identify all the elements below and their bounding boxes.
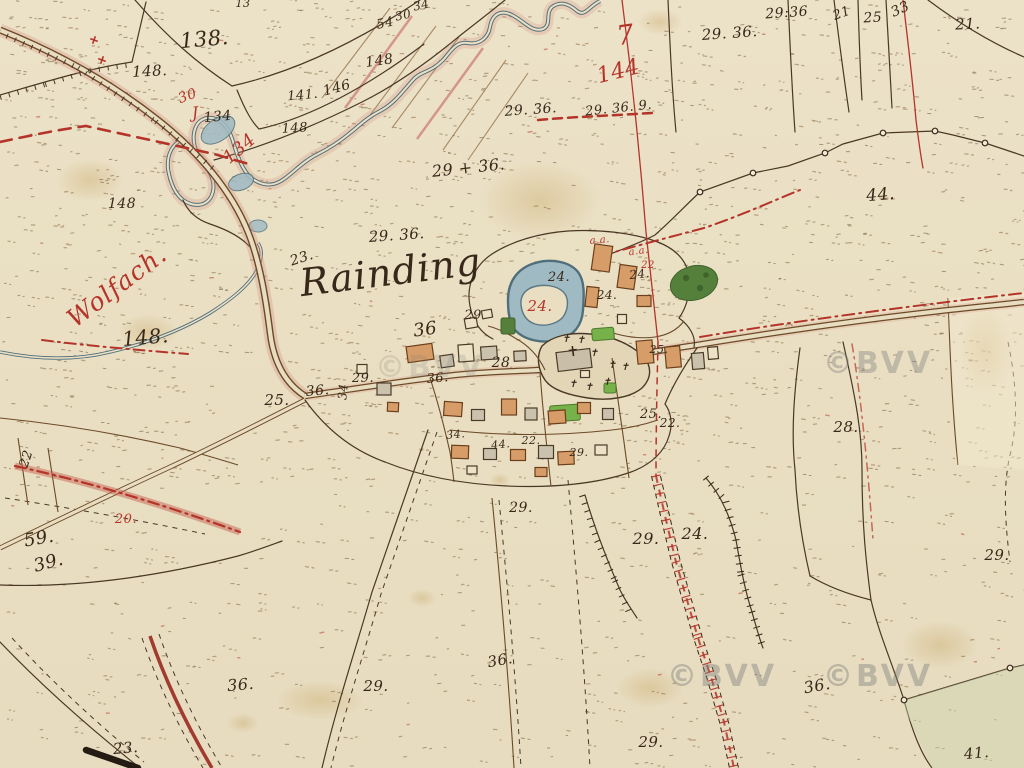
parcel-number-label: 22 [640,260,655,271]
survey-point-icon [901,697,907,703]
grave-cross-icon: ✝ [590,348,599,359]
building-wood [387,402,398,412]
grave-cross-icon: ✝ [608,360,617,371]
building-open [595,445,607,455]
building-wood-footprint [578,403,591,414]
grave-cross-icon: ✝ [562,334,571,345]
parcel-number-label: 29. [569,446,589,459]
building-stone-footprint [525,408,537,420]
parcel-number-label: a.a. [589,234,610,247]
parcel-number-label: 20. [114,512,137,527]
parcel-number-label: 29:36 [764,4,809,23]
parcel-number-label: 41. [962,743,990,763]
building-open-footprint [618,315,627,324]
parcel-number-label: 36. [226,674,255,695]
parcel-number-label: 34 [335,383,350,400]
survey-point-icon [932,128,938,134]
grave-cross-icon: ✝ [621,362,630,373]
parcel-number-label: 29. [508,500,533,516]
survey-point-icon [750,170,756,176]
parcel-number-label: 148 [281,120,308,136]
building-open-footprint [595,445,607,455]
building-wood-footprint [548,410,566,424]
building-wood [578,403,591,414]
parcel-number-label: 29. [637,733,663,751]
survey-point-icon [697,189,703,195]
parcel-number-label: 24. [547,270,570,285]
parcel-number-label: 22. [659,416,681,430]
building-stone-footprint [539,446,554,459]
parcel-number-label: 44. [490,437,511,452]
building-open-footprint [707,347,718,360]
survey-point-icon [822,150,828,156]
building-wood-footprint [444,401,463,416]
parcel-number-label: 28 [491,355,511,371]
parcel-number-label: 34. [446,427,466,442]
grave-cross-icon: ✝ [585,382,594,393]
paper-stain [276,680,364,720]
building-wood [535,468,547,477]
building-wood [502,399,517,415]
light-parcel [948,292,1024,470]
grave-cross-icon: ✝ [577,335,586,346]
building-stone-footprint [514,351,527,362]
building-stone-footprint [472,410,485,421]
parcel-number-label: 141. [287,87,319,105]
garden-plot [592,327,615,341]
parcel-number-label: 29 [463,308,482,323]
building-stone [603,409,614,420]
building-open [618,315,627,324]
bvv-watermark: ©BVV [823,659,933,694]
tree-icon [683,275,689,281]
parcel-number-label: 22. [521,434,541,447]
building-open [707,347,718,360]
building-wood-footprint [591,244,612,272]
parcel-number-label: 28. [832,418,858,436]
grave-cross-icon: ✝ [603,377,612,388]
building-wood-footprint [637,296,651,307]
parcel-number-label: 25. [263,391,289,409]
parcel-number-label: 29. [351,371,374,386]
tree-icon [697,285,703,291]
parcel-number-label: 44. [864,184,895,206]
building-wood-footprint [511,450,526,461]
garden-plot [501,318,515,334]
building-stone-footprint [603,409,614,420]
bvv-watermark: ©BVV [667,659,777,694]
building-wood [637,296,651,307]
parcel-number-label: 36 [412,317,439,341]
parcel-number-label: 25. [639,407,662,422]
parcel-number-label: 29. [983,546,1009,564]
survey-point-icon [880,130,886,136]
building-open [481,309,492,319]
parcel-number-label: 148 [108,196,136,212]
bvv-watermark: ©BVV [823,346,933,381]
paper-stain [227,713,259,733]
parcel-number-label: 25. [649,343,669,356]
building-wood-footprint [502,399,517,415]
building-stone-footprint [691,353,704,370]
parcel-number-label: 25 [862,10,883,27]
paper-stain [408,589,436,607]
building-open [467,466,477,474]
parcel-number-label: 21. [954,14,981,33]
parcel-number-label: 29. [632,529,660,548]
cadastral-map: Historische Katasterkarte – Rainding an … [0,0,1024,768]
scanned-map-page: Historische Katasterkarte – Rainding an … [0,0,1024,768]
parcel-number-label: 24. [681,524,709,543]
building-wood [511,450,526,461]
building-open-footprint [481,309,492,319]
parcel-number-label: 29. [362,677,388,695]
building-wood [591,244,612,272]
building-wood-footprint [535,468,547,477]
parcel-number-label: 148. [132,61,168,81]
survey-point-icon [1007,665,1013,671]
parcel-number-label: 24. [526,297,552,315]
building-stone [539,446,554,459]
church-building-footprint [556,348,592,371]
tree-icon [703,272,709,278]
building-wood-footprint [387,402,398,412]
paper-stain [638,9,682,35]
parcel-number-label: 23. [111,738,139,758]
building-open [581,371,590,378]
parcel-number-label: 138. [179,25,230,53]
parcel-number-label: 13 [236,0,251,10]
building-open-footprint [467,466,477,474]
building-stone [525,408,537,420]
bvv-watermark: ©BVV [375,350,485,385]
building-wood [444,401,463,416]
grave-cross-icon: ✝ [569,379,578,390]
parcel-number-label: 24. [596,288,618,302]
building-wood [451,445,468,459]
building-stone [691,353,704,370]
survey-point-icon [982,140,988,146]
parcel-number-label: 148. [121,323,169,351]
building-stone [514,351,527,362]
building-wood [548,410,566,424]
building-wood-footprint [451,445,468,459]
building-open-footprint [581,371,590,378]
building-stone [472,410,485,421]
parcel-number-label: 134 [203,108,233,126]
parcel-number-label: 36. [305,382,330,400]
